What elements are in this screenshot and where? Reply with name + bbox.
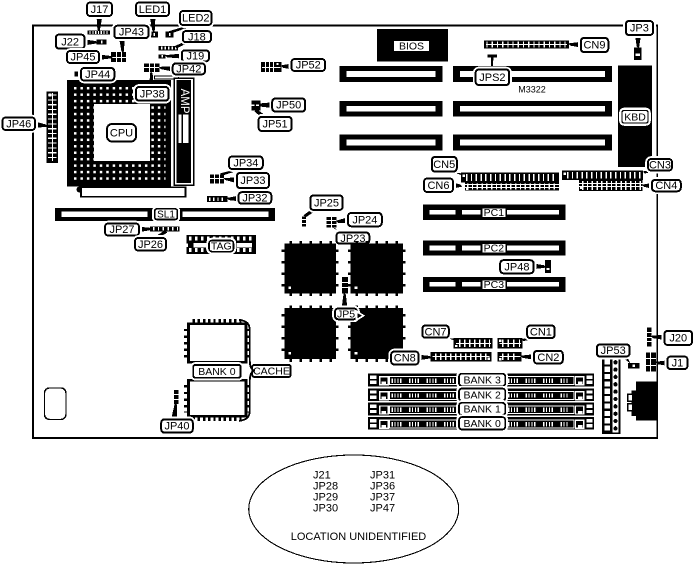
svg-text:PC3: PC3	[484, 279, 505, 291]
svg-text:J20: J20	[669, 333, 687, 345]
svg-text:BANK 0: BANK 0	[198, 366, 236, 378]
svg-text:CN9: CN9	[583, 40, 605, 52]
svg-text:LED2: LED2	[182, 13, 210, 25]
svg-text:AMP: AMP	[178, 89, 190, 114]
svg-text:J18: J18	[188, 31, 206, 43]
svg-text:BANK 0: BANK 0	[463, 418, 501, 430]
svg-text:JP40: JP40	[164, 421, 189, 433]
svg-text:CN6: CN6	[427, 180, 449, 192]
svg-text:CN2: CN2	[537, 352, 559, 364]
svg-text:J22: J22	[61, 36, 79, 48]
svg-text:BANK 3: BANK 3	[463, 374, 501, 386]
svg-text:JP24: JP24	[352, 214, 377, 226]
svg-text:CN8: CN8	[394, 353, 416, 365]
svg-text:JP52: JP52	[296, 60, 321, 72]
svg-text:JP47: JP47	[370, 503, 395, 515]
svg-text:TAG: TAG	[211, 241, 232, 253]
svg-text:JP50: JP50	[276, 100, 301, 112]
svg-text:JP32: JP32	[242, 193, 267, 205]
svg-text:CPU: CPU	[110, 127, 133, 139]
svg-text:JP3: JP3	[630, 23, 649, 35]
svg-text:CN7: CN7	[425, 326, 447, 338]
svg-text:J17: J17	[91, 4, 109, 16]
svg-text:JP53: JP53	[601, 345, 626, 357]
svg-text:BANK 2: BANK 2	[463, 389, 501, 401]
svg-text:CN4: CN4	[655, 180, 677, 192]
svg-text:KBD: KBD	[624, 111, 646, 123]
svg-text:JP34: JP34	[233, 157, 258, 169]
svg-text:JP44: JP44	[85, 69, 110, 81]
svg-text:JP48: JP48	[504, 261, 529, 273]
svg-text:CACHE: CACHE	[253, 366, 290, 378]
svg-text:BANK 1: BANK 1	[463, 404, 501, 416]
svg-text:JP27: JP27	[109, 224, 134, 236]
svg-text:CN3: CN3	[649, 159, 671, 171]
svg-text:BIOS: BIOS	[399, 41, 424, 53]
svg-text:JP30: JP30	[313, 503, 338, 515]
svg-text:JP25: JP25	[314, 197, 339, 209]
svg-text:CN1: CN1	[530, 327, 552, 339]
svg-text:JP23: JP23	[340, 233, 365, 245]
svg-text:JP26: JP26	[138, 239, 163, 251]
svg-text:JPS2: JPS2	[479, 72, 505, 84]
svg-text:M3322: M3322	[518, 85, 546, 95]
svg-text:PC1: PC1	[484, 207, 505, 219]
svg-text:LED1: LED1	[139, 4, 167, 16]
svg-text:LOCATION UNIDENTIFIED: LOCATION UNIDENTIFIED	[291, 531, 427, 543]
svg-text:JP33: JP33	[240, 175, 265, 187]
svg-text:JP43: JP43	[119, 27, 144, 39]
svg-text:J1: J1	[672, 358, 684, 370]
svg-text:JP45: JP45	[70, 52, 95, 64]
svg-text:JP46: JP46	[6, 118, 31, 130]
svg-text:JP51: JP51	[263, 119, 288, 131]
svg-text:CN5: CN5	[433, 159, 455, 171]
svg-text:JP38: JP38	[140, 89, 165, 101]
svg-text:JP42: JP42	[176, 64, 201, 76]
svg-text:PC2: PC2	[484, 243, 505, 255]
svg-text:JP5: JP5	[337, 308, 355, 320]
svg-text:SL1: SL1	[157, 210, 175, 221]
